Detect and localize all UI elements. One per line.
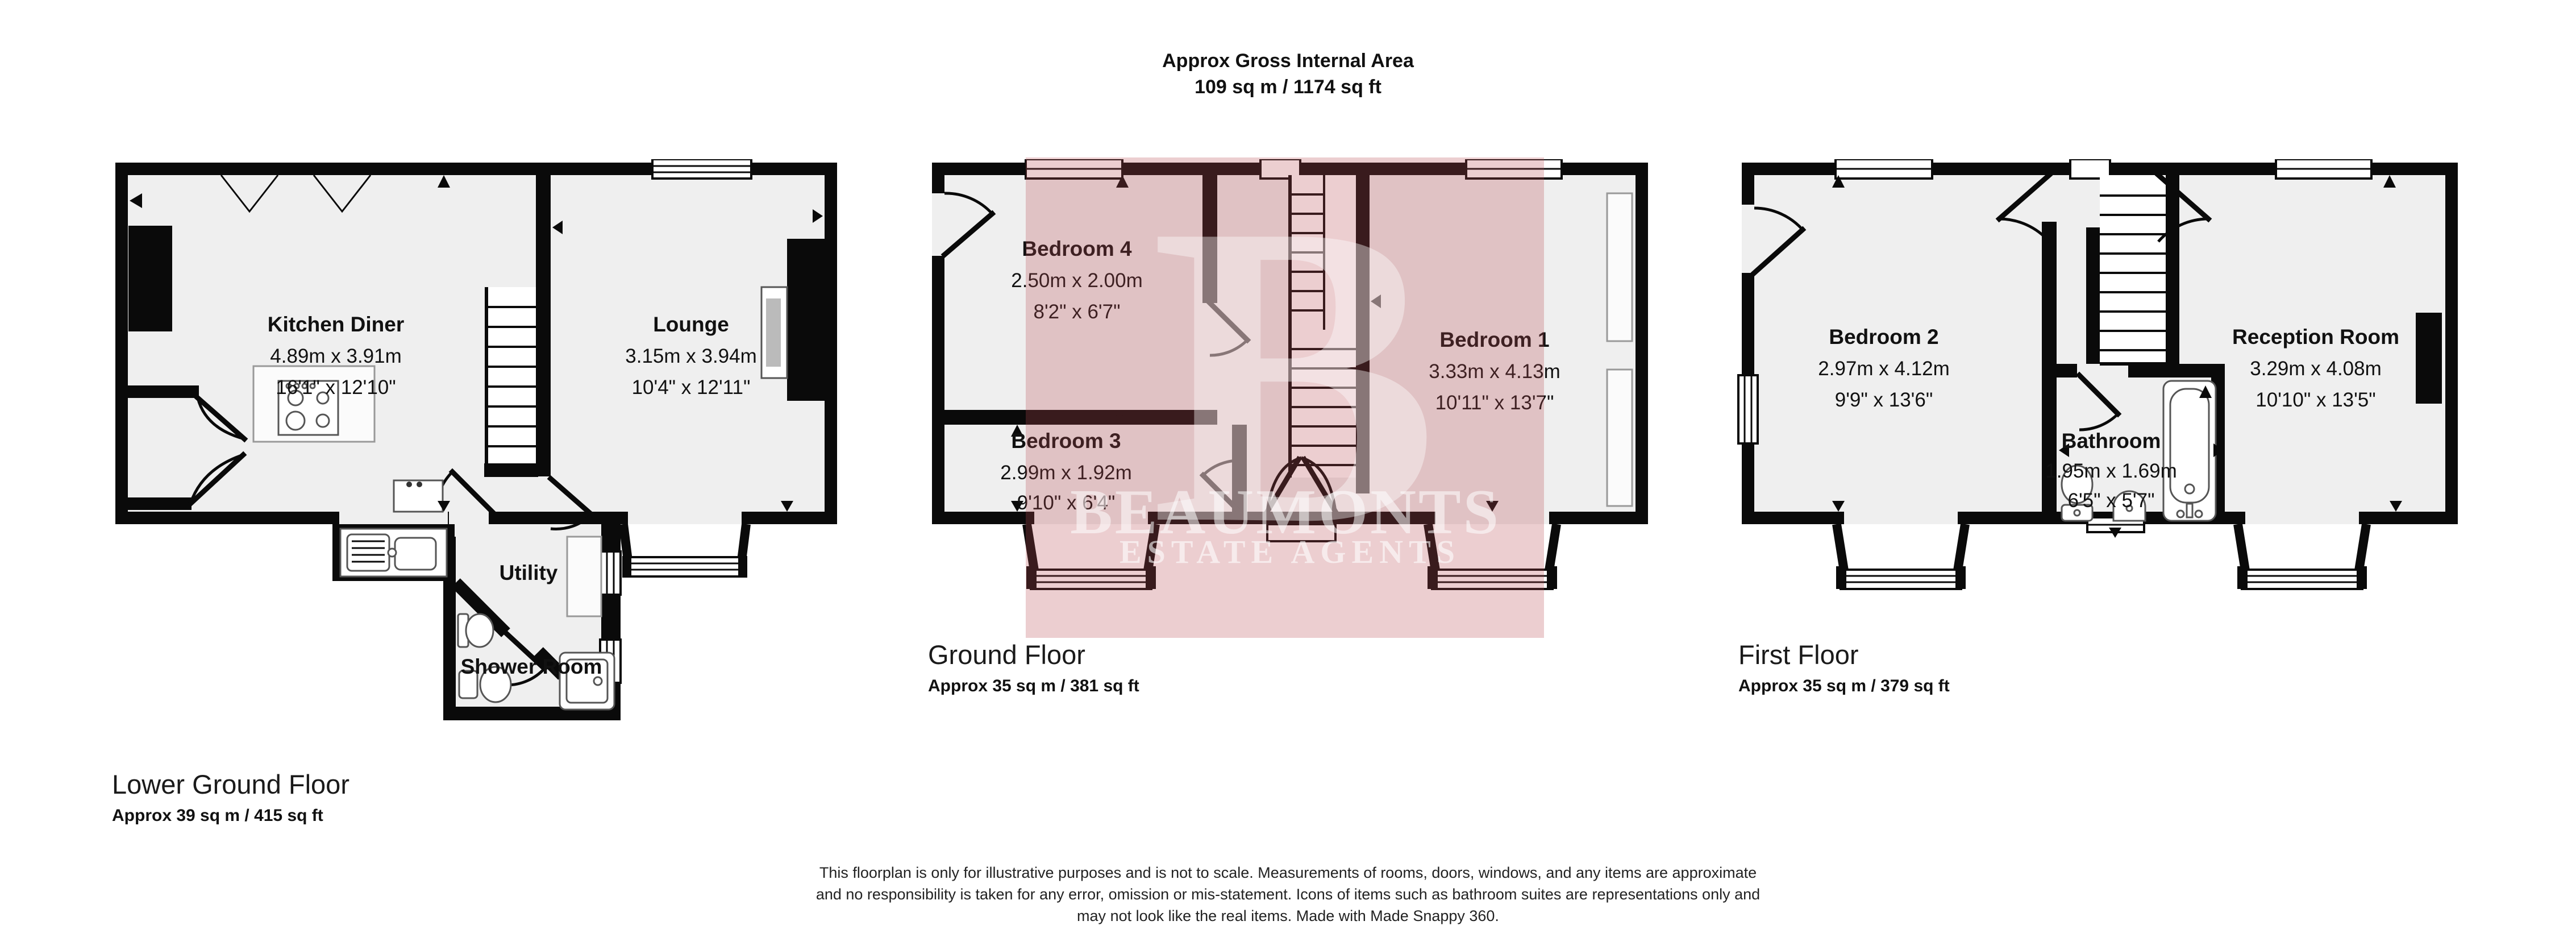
disclaimer-line: may not look like the real items. Made w… bbox=[816, 905, 1760, 927]
room-imperial: 10'10" x 13'5" bbox=[2255, 389, 2375, 411]
room-label-kitchen-diner: Kitchen Diner 4.89m x 3.91m 16'1" x 12'1… bbox=[268, 313, 405, 399]
kitchen-sink-icon bbox=[332, 512, 455, 581]
room-metric: 4.89m x 3.91m bbox=[270, 345, 402, 367]
lounge-window bbox=[652, 159, 751, 179]
room-imperial: 10'4" x 12'11" bbox=[632, 376, 751, 399]
room-label-shower-room: Shower Room bbox=[461, 655, 602, 678]
watermark-tagline: ESTATE AGENTS bbox=[1120, 533, 1460, 571]
room-name: Lounge bbox=[653, 313, 729, 336]
stairs-icon bbox=[486, 287, 536, 463]
lower-ground-floor-title: Lower Ground Floor bbox=[112, 769, 349, 800]
disclaimer-line: and no responsibility is taken for any e… bbox=[816, 883, 1760, 905]
bedroom2-window bbox=[1738, 375, 1758, 443]
gross-area-title: Approx Gross Internal Area bbox=[1162, 48, 1414, 74]
room-name: Reception Room bbox=[2232, 325, 2399, 349]
utility-window bbox=[600, 551, 621, 595]
first-floor-plan: Bedroom 2 2.97m x 4.12m 9'9" x 13'6" Bat… bbox=[1736, 159, 2469, 614]
room-label-utility: Utility bbox=[500, 561, 558, 584]
disclaimer-line: This floorplan is only for illustrative … bbox=[816, 862, 1760, 883]
room-imperial: 16'1" x 12'10" bbox=[276, 376, 396, 399]
ground-floor-title: Ground Floor bbox=[928, 639, 1085, 670]
room-metric: 3.29m x 4.08m bbox=[2250, 358, 2382, 380]
bay-window bbox=[1836, 512, 1966, 589]
bath-icon bbox=[2163, 381, 2216, 521]
appliance-icon bbox=[394, 480, 443, 512]
basin-icon bbox=[458, 614, 493, 647]
utility-worktop bbox=[567, 537, 601, 616]
bay-window bbox=[622, 512, 747, 578]
lower-ground-floor-plan: Kitchen Diner 4.89m x 3.91m 16'1" x 12'1… bbox=[108, 159, 852, 722]
room-imperial: 9'9" x 13'6" bbox=[1835, 389, 1933, 411]
floorplan-image: Approx Gross Internal Area 109 sq m / 11… bbox=[0, 0, 2576, 950]
lower-ground-floor-area: Approx 39 sq m / 415 sq ft bbox=[112, 806, 323, 825]
ground-floor-area: Approx 35 sq m / 381 sq ft bbox=[928, 677, 1139, 696]
disclaimer: This floorplan is only for illustrative … bbox=[816, 862, 1760, 927]
room-name: Kitchen Diner bbox=[268, 313, 405, 336]
room-name: Bathroom bbox=[2062, 429, 2161, 453]
gross-internal-area: Approx Gross Internal Area 109 sq m / 11… bbox=[1162, 48, 1414, 100]
stairs-icon bbox=[2100, 175, 2166, 364]
bay-window bbox=[2237, 512, 2367, 589]
room-label-bedroom-2: Bedroom 2 2.97m x 4.12m 9'9" x 13'6" bbox=[1818, 325, 1950, 411]
room-metric: 2.97m x 4.12m bbox=[1818, 358, 1950, 380]
room-metric: 1.95m x 1.69m bbox=[2045, 460, 2177, 482]
first-floor-title: First Floor bbox=[1738, 639, 1859, 670]
watermark-overlay: B BEAUMONTS ESTATE AGENTS bbox=[1026, 157, 1544, 638]
room-metric: 3.15m x 3.94m bbox=[625, 345, 757, 367]
bedroom1-window bbox=[1607, 193, 1632, 341]
room-name: Bedroom 2 bbox=[1829, 325, 1938, 349]
room-imperial: 6'5" x 5'7" bbox=[2067, 489, 2154, 512]
room-label-reception-room: Reception Room 3.29m x 4.08m 10'10" x 13… bbox=[2232, 325, 2399, 411]
bedroom1-window bbox=[1607, 370, 1632, 506]
first-floor-area: Approx 35 sq m / 379 sq ft bbox=[1738, 677, 1950, 696]
gross-area-value: 109 sq m / 1174 sq ft bbox=[1162, 74, 1414, 100]
